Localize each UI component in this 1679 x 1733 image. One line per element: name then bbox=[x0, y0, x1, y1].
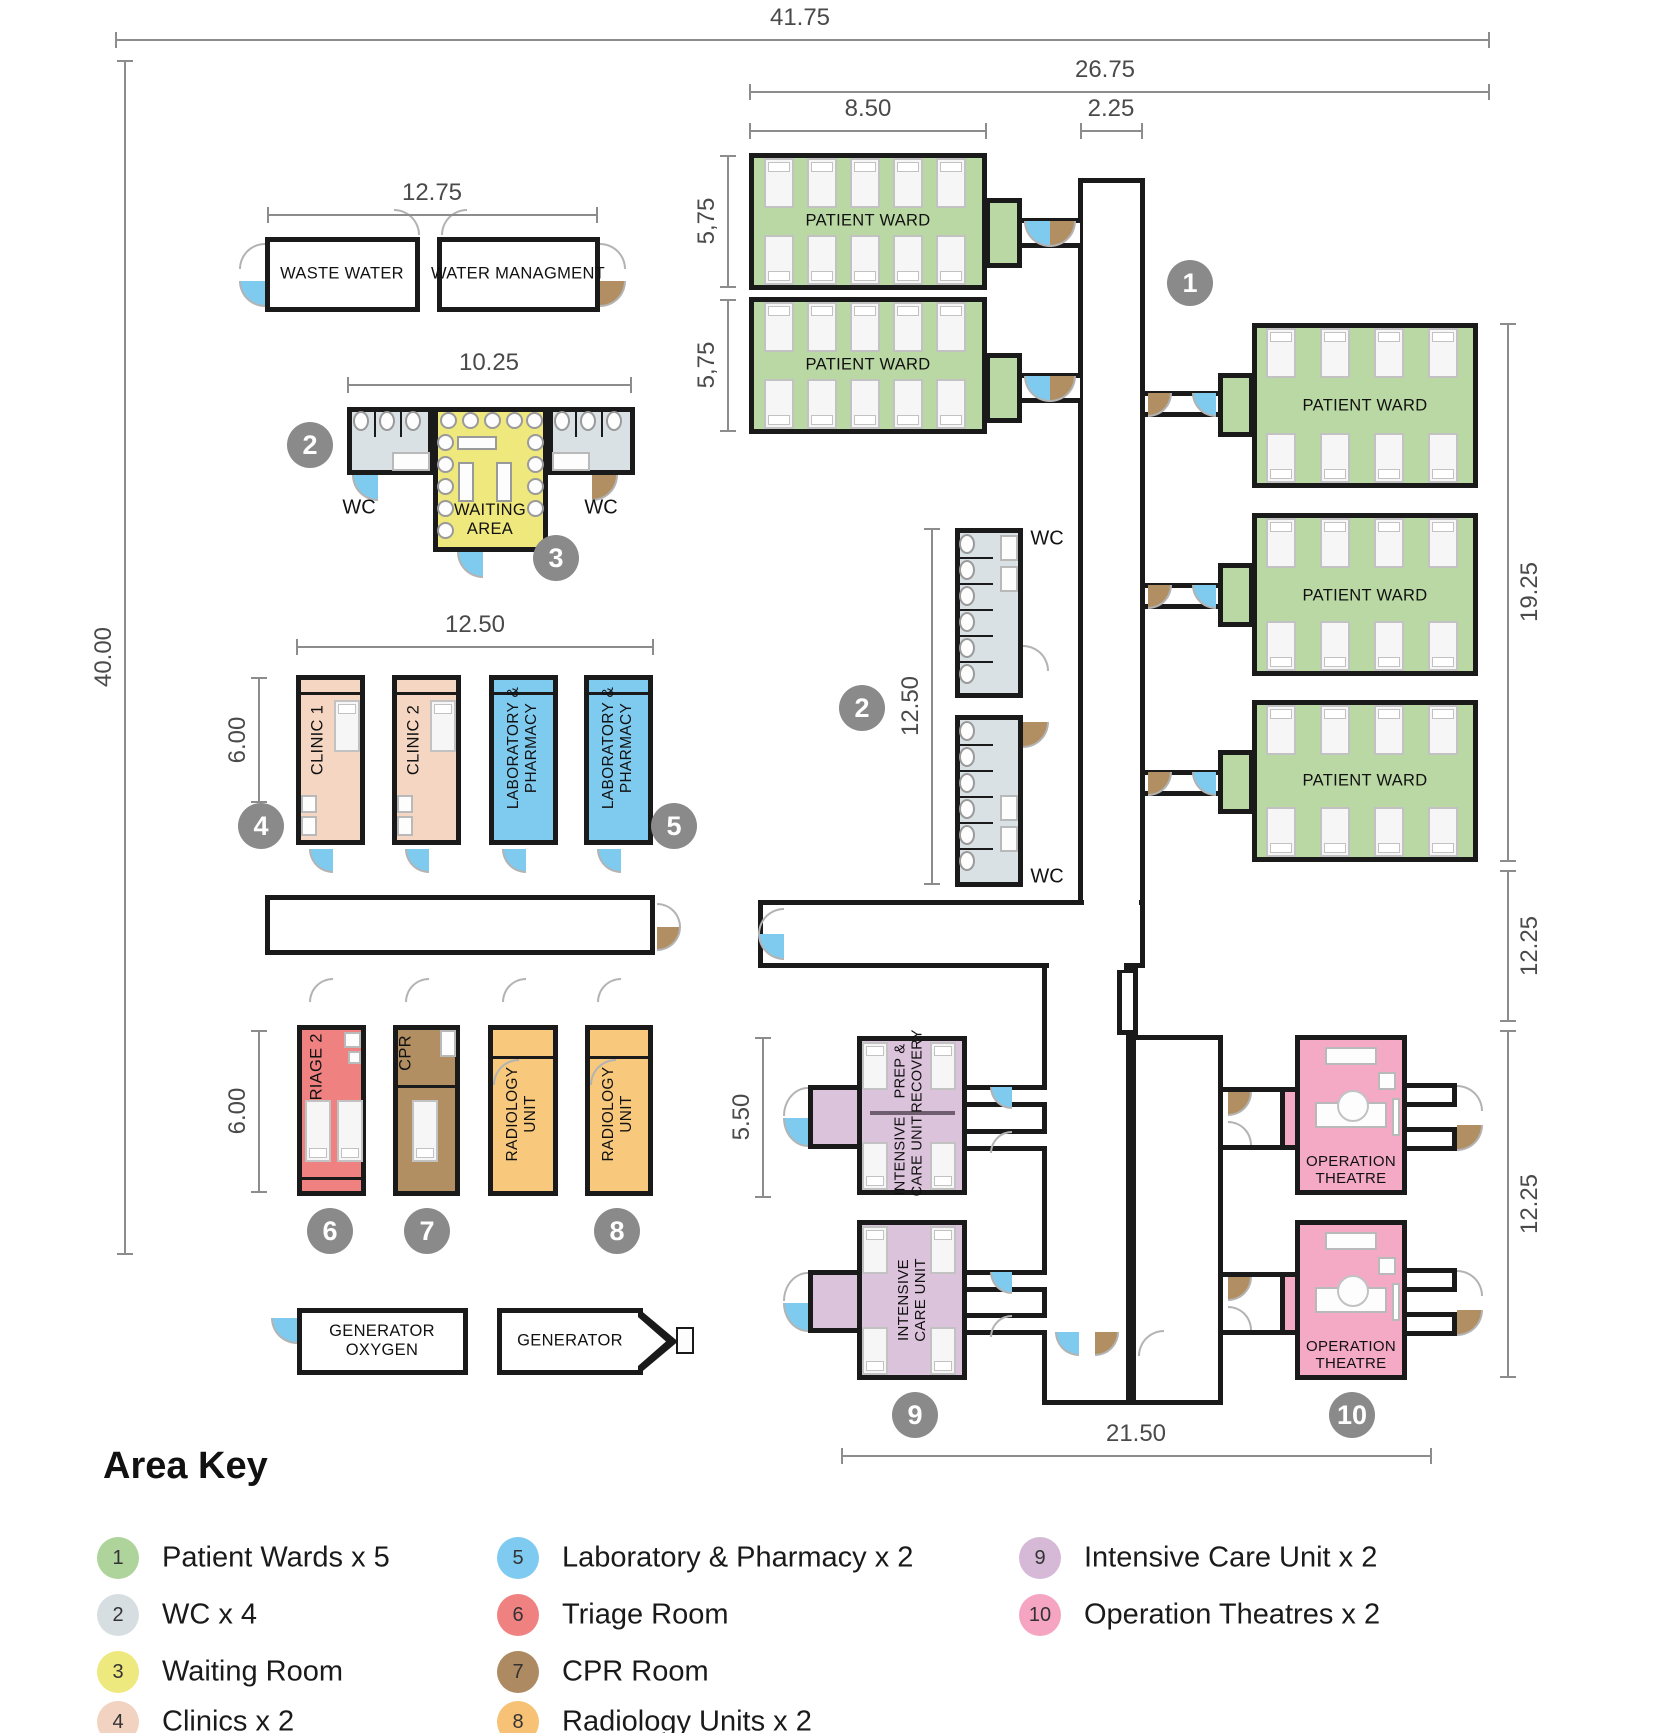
legend-swatch-6: 6 bbox=[497, 1594, 539, 1636]
ot-equipment bbox=[1392, 1098, 1400, 1136]
chair bbox=[527, 434, 544, 451]
wc-sink bbox=[1000, 535, 1018, 561]
dim-line-clinic-block bbox=[296, 646, 654, 648]
bed bbox=[807, 235, 837, 285]
door-arc bbox=[309, 978, 333, 1002]
bed bbox=[850, 379, 880, 429]
bed bbox=[807, 158, 837, 208]
stall-wall bbox=[955, 770, 993, 772]
bed bbox=[430, 700, 456, 752]
triage-cabinet bbox=[344, 1032, 361, 1048]
dim-line-theatre-block bbox=[1507, 1030, 1509, 1378]
marker-10: 10 bbox=[1329, 1392, 1375, 1438]
dim-line-bottom-block bbox=[841, 1455, 1432, 1457]
room-label-intensive-care: INTENSIVE CARE UNIT bbox=[892, 1116, 925, 1197]
wall-line bbox=[393, 1085, 460, 1088]
stall-wall bbox=[955, 557, 993, 559]
door-arc bbox=[1457, 1125, 1483, 1151]
ot-equipment bbox=[1392, 1283, 1400, 1321]
stall-wall bbox=[955, 609, 993, 611]
legend-swatch-9: 9 bbox=[1019, 1537, 1061, 1579]
marker-8: 8 bbox=[594, 1208, 640, 1254]
icu2-tab bbox=[808, 1270, 862, 1333]
room-label-laboratory: LABORATORY & PHARMACY bbox=[600, 687, 636, 809]
room-label-operation-theatre: OPERATION THEATRE bbox=[1306, 1338, 1396, 1373]
chair bbox=[526, 412, 543, 429]
dim-total-width: 41.75 bbox=[770, 4, 830, 32]
ot-equipment bbox=[1378, 1257, 1396, 1275]
dim-line-wc-waiting bbox=[347, 384, 632, 386]
legend-label-1: Patient Wards x 5 bbox=[162, 1542, 390, 1575]
corridor-left-horizontal bbox=[265, 895, 655, 955]
dim-icu-height: 5.50 bbox=[728, 1094, 756, 1141]
legend-swatch-5: 5 bbox=[497, 1537, 539, 1579]
bed bbox=[807, 302, 837, 352]
bed bbox=[1428, 518, 1458, 568]
wall-line bbox=[585, 1056, 653, 1059]
dim-line-total-height bbox=[124, 60, 126, 1255]
wc-sink bbox=[1000, 566, 1018, 592]
icu1-tab bbox=[808, 1085, 862, 1149]
waiting-table bbox=[496, 462, 512, 502]
legend-label-8: Radiology Units x 2 bbox=[562, 1706, 812, 1733]
bed bbox=[1428, 621, 1458, 671]
room-label-waste-water: WASTE WATER bbox=[280, 265, 404, 284]
dim-line-total-width bbox=[115, 39, 1490, 41]
ot-equipment bbox=[1378, 1072, 1396, 1090]
marker-7: 7 bbox=[404, 1208, 450, 1254]
ward2-tab bbox=[985, 353, 1022, 423]
dim-clinic-block: 12.50 bbox=[445, 611, 505, 639]
ot-equipment bbox=[1325, 1047, 1377, 1065]
stall-wall bbox=[955, 744, 993, 746]
wall-line bbox=[296, 692, 365, 695]
wall-line bbox=[488, 1056, 558, 1059]
wall-line bbox=[392, 692, 461, 695]
legend-label-2: WC x 4 bbox=[162, 1599, 257, 1632]
dim-line-ward-width bbox=[749, 130, 987, 132]
bed bbox=[1320, 328, 1350, 378]
door-arc bbox=[657, 927, 681, 951]
stall-wall bbox=[374, 407, 376, 437]
bed bbox=[337, 1100, 363, 1162]
wc-toilet bbox=[606, 411, 622, 431]
door-arc bbox=[441, 209, 467, 235]
bed bbox=[764, 158, 794, 208]
dim-ward-a: 5,75 bbox=[693, 198, 721, 245]
chair bbox=[484, 412, 501, 429]
marker-2: 2 bbox=[839, 685, 885, 731]
bed bbox=[1320, 807, 1350, 857]
bed bbox=[1320, 433, 1350, 483]
ot-equipment bbox=[1325, 1232, 1377, 1250]
bed bbox=[1428, 433, 1458, 483]
wc-toilet bbox=[959, 851, 975, 871]
wc-toilet bbox=[959, 825, 975, 845]
chair bbox=[437, 478, 454, 495]
bed bbox=[936, 158, 966, 208]
legend-label-6: Triage Room bbox=[562, 1599, 729, 1632]
legend-label-9: Intensive Care Unit x 2 bbox=[1084, 1542, 1377, 1575]
door-arc bbox=[783, 1303, 808, 1332]
dim-mid-wc: 12.50 bbox=[897, 676, 925, 736]
door-arc bbox=[239, 281, 265, 307]
bed bbox=[936, 235, 966, 285]
ward1-tab bbox=[985, 198, 1022, 268]
chair bbox=[462, 412, 479, 429]
wc-toilet bbox=[959, 586, 975, 606]
dim-theatre-block: 12.25 bbox=[1516, 1174, 1544, 1234]
chair bbox=[506, 412, 523, 429]
bed bbox=[862, 1042, 888, 1090]
door-arc bbox=[502, 849, 526, 873]
door-stub-ot2-right bbox=[1407, 1268, 1457, 1292]
door-arc bbox=[597, 978, 621, 1002]
ward4-tab bbox=[1218, 563, 1254, 627]
door-arc bbox=[1457, 1310, 1483, 1336]
bed bbox=[893, 302, 923, 352]
dim-ward-b: 5,75 bbox=[693, 342, 721, 389]
legend-label-3: Waiting Room bbox=[162, 1656, 343, 1689]
room-label-patient-ward: PATIENT WARD bbox=[1303, 397, 1428, 416]
bed bbox=[764, 379, 794, 429]
dim-line-mid-wc bbox=[931, 528, 933, 885]
wc-sink bbox=[1000, 795, 1018, 821]
room-label-laboratory: LABORATORY & PHARMACY bbox=[505, 687, 541, 809]
door-arc bbox=[405, 849, 429, 873]
bed bbox=[412, 1100, 438, 1162]
legend-label-7: CPR Room bbox=[562, 1656, 709, 1689]
room-label-clinic-2: CLINIC 2 bbox=[405, 705, 424, 775]
bed bbox=[305, 1100, 331, 1162]
wc-toilet bbox=[554, 411, 570, 431]
door-arc bbox=[405, 978, 429, 1002]
marker-9: 9 bbox=[892, 1392, 938, 1438]
stall-wall bbox=[400, 407, 402, 437]
corridor-junction bbox=[1084, 898, 1139, 910]
room-label-radiology: RADIOLOGY UNIT bbox=[504, 1067, 540, 1162]
bed bbox=[862, 1226, 888, 1274]
bed bbox=[936, 379, 966, 429]
bed bbox=[1320, 705, 1350, 755]
clinic-cabinet bbox=[397, 816, 413, 836]
dim-mid-right: 12.25 bbox=[1516, 916, 1544, 976]
bed bbox=[1266, 807, 1296, 857]
marker-5: 5 bbox=[651, 803, 697, 849]
room-label-cpr: CPR bbox=[397, 1035, 416, 1071]
bed bbox=[1266, 621, 1296, 671]
stall-wall bbox=[955, 848, 993, 850]
bed bbox=[1374, 621, 1404, 671]
bed bbox=[936, 302, 966, 352]
triage-cabinet bbox=[348, 1051, 361, 1064]
door-arc bbox=[783, 1272, 808, 1301]
room-label-prep-recovery: PREP & RECOVERY bbox=[892, 1029, 925, 1113]
corridor-junction bbox=[1049, 956, 1124, 970]
bed bbox=[764, 302, 794, 352]
legend-swatch-4: 4 bbox=[97, 1701, 139, 1733]
bed bbox=[1374, 807, 1404, 857]
wc-toilet bbox=[959, 664, 975, 684]
dim-line-ward-a bbox=[727, 155, 729, 288]
bed bbox=[850, 302, 880, 352]
room-label-operation-theatre: OPERATION THEATRE bbox=[1306, 1153, 1396, 1188]
legend-swatch-2: 2 bbox=[97, 1594, 139, 1636]
corridor-top-vertical bbox=[1078, 178, 1145, 905]
wc-toilet bbox=[353, 411, 369, 431]
dim-line-corridor-width bbox=[1080, 130, 1143, 132]
wc-sink bbox=[392, 452, 430, 471]
wc-toilet bbox=[959, 721, 975, 741]
wc-toilet bbox=[959, 799, 975, 819]
stall-wall bbox=[955, 796, 993, 798]
room-label-patient-ward: PATIENT WARD bbox=[806, 212, 931, 231]
door-arc bbox=[1457, 1270, 1483, 1296]
dim-total-height: 40.00 bbox=[90, 627, 118, 687]
bed bbox=[1320, 621, 1350, 671]
chair bbox=[527, 500, 544, 517]
dim-right-wards: 19.25 bbox=[1516, 562, 1544, 622]
room-label-radiology: RADIOLOGY UNIT bbox=[600, 1067, 636, 1162]
marker-4: 4 bbox=[238, 803, 284, 849]
room-label-generator-oxygen: GENERATOR OXYGEN bbox=[329, 1322, 435, 1360]
generator-endbox bbox=[676, 1327, 694, 1354]
wc-toilet bbox=[405, 411, 421, 431]
bed bbox=[850, 235, 880, 285]
bed bbox=[930, 1226, 956, 1274]
door-arc bbox=[657, 903, 681, 927]
marker-1: 1 bbox=[1167, 260, 1213, 306]
door-arc bbox=[1023, 645, 1049, 671]
dim-line-icu-height bbox=[762, 1037, 764, 1198]
room-label-wc: WC bbox=[1030, 866, 1063, 889]
bed bbox=[1266, 518, 1296, 568]
door-arc bbox=[600, 281, 626, 307]
bed bbox=[1374, 328, 1404, 378]
marker-6: 6 bbox=[307, 1208, 353, 1254]
room-label-wc: WC bbox=[1030, 528, 1063, 551]
bed bbox=[862, 1142, 888, 1190]
stall-wall bbox=[955, 583, 993, 585]
waiting-table bbox=[458, 462, 474, 502]
chair bbox=[440, 412, 457, 429]
door-stub-ot2-right bbox=[1407, 1312, 1457, 1336]
dim-line-mid-right bbox=[1507, 870, 1509, 1022]
door-arc bbox=[597, 849, 621, 873]
door-arc bbox=[457, 552, 483, 578]
door-stub-ot1-right bbox=[1407, 1127, 1457, 1151]
legend-label-4: Clinics x 2 bbox=[162, 1706, 294, 1733]
bed bbox=[850, 158, 880, 208]
room-label-clinic-1: CLINIC 1 bbox=[309, 705, 328, 775]
room-label-generator: GENERATOR bbox=[517, 1332, 623, 1351]
ot-lamp bbox=[1337, 1275, 1369, 1307]
bed bbox=[334, 700, 360, 752]
bed bbox=[1374, 433, 1404, 483]
marker-2: 2 bbox=[287, 422, 333, 468]
bed bbox=[1320, 518, 1350, 568]
room-label-waiting-area: WAITING AREA bbox=[454, 501, 526, 539]
bed bbox=[1428, 328, 1458, 378]
corridor-niche bbox=[1117, 968, 1138, 1035]
dim-line-right-block bbox=[749, 91, 1490, 93]
bed bbox=[1266, 433, 1296, 483]
door-arc bbox=[271, 1318, 297, 1344]
dim-ward-width: 8.50 bbox=[845, 95, 892, 123]
ward3-tab bbox=[1218, 373, 1254, 437]
stall-wall bbox=[575, 407, 577, 437]
wc-toilet bbox=[959, 747, 975, 767]
bed bbox=[1428, 705, 1458, 755]
dim-bottom-block: 21.50 bbox=[1106, 1420, 1166, 1448]
wc-toilet bbox=[959, 560, 975, 580]
bed bbox=[764, 235, 794, 285]
room-label-patient-ward: PATIENT WARD bbox=[1303, 772, 1428, 791]
dim-right-block: 26.75 bbox=[1075, 56, 1135, 84]
bed bbox=[1374, 705, 1404, 755]
door-arc bbox=[394, 209, 420, 235]
bed bbox=[930, 1142, 956, 1190]
dim-wc-waiting: 10.25 bbox=[459, 349, 519, 377]
chair bbox=[527, 456, 544, 473]
marker-3: 3 bbox=[533, 535, 579, 581]
wall-line bbox=[297, 1177, 366, 1180]
door-stub-ot1-right bbox=[1407, 1083, 1457, 1107]
dim-line-utility bbox=[267, 214, 598, 216]
chair bbox=[437, 500, 454, 517]
chair bbox=[437, 434, 454, 451]
bed bbox=[862, 1327, 888, 1375]
clinic-cabinet bbox=[301, 816, 317, 836]
hospital-floor-plan: TRIAGE 2 bbox=[0, 0, 1679, 1733]
stall-wall bbox=[955, 822, 993, 824]
dim-clinic-height: 6.00 bbox=[224, 717, 252, 764]
door-arc bbox=[1457, 1085, 1483, 1111]
bed bbox=[807, 379, 837, 429]
wc-toilet bbox=[959, 773, 975, 793]
wc-toilet bbox=[580, 411, 596, 431]
bed bbox=[930, 1042, 956, 1090]
dim-line-ward-b bbox=[727, 299, 729, 432]
wc-toilet bbox=[959, 534, 975, 554]
door-arc bbox=[1023, 722, 1049, 748]
wc-sink bbox=[1000, 826, 1018, 852]
cpr-cabinet bbox=[440, 1030, 456, 1057]
bed bbox=[930, 1327, 956, 1375]
legend-swatch-3: 3 bbox=[97, 1651, 139, 1693]
wc-sink bbox=[552, 452, 590, 471]
bed bbox=[1374, 518, 1404, 568]
bed bbox=[1428, 807, 1458, 857]
waiting-table bbox=[457, 436, 497, 450]
legend-label-5: Laboratory & Pharmacy x 2 bbox=[562, 1542, 913, 1575]
legend-label-10: Operation Theatres x 2 bbox=[1084, 1599, 1380, 1632]
legend-title: Area Key bbox=[103, 1445, 268, 1488]
wc-toilet bbox=[959, 638, 975, 658]
dim-line-right-wards bbox=[1507, 323, 1509, 862]
wc-toilet bbox=[959, 612, 975, 632]
door-arc bbox=[502, 978, 526, 1002]
ward5-tab bbox=[1218, 750, 1254, 814]
legend-swatch-10: 10 bbox=[1019, 1594, 1061, 1636]
dim-line-triage-height bbox=[258, 1030, 260, 1193]
door-arc bbox=[783, 1118, 808, 1147]
stall-wall bbox=[955, 661, 993, 663]
room-label-wc: WC bbox=[584, 497, 617, 520]
stall-wall bbox=[601, 407, 603, 437]
room-label-intensive-care: INTENSIVE CARE UNIT bbox=[895, 1258, 930, 1342]
wc-toilet bbox=[379, 411, 395, 431]
clinic-cabinet bbox=[397, 795, 413, 813]
dim-utility: 12.75 bbox=[402, 179, 462, 207]
ot-lamp bbox=[1337, 1090, 1369, 1122]
stall-wall bbox=[955, 635, 993, 637]
bed bbox=[893, 379, 923, 429]
room-label-patient-ward: PATIENT WARD bbox=[1303, 587, 1428, 606]
room-label-patient-ward: PATIENT WARD bbox=[806, 356, 931, 375]
legend-swatch-1: 1 bbox=[97, 1537, 139, 1579]
dim-triage-height: 6.00 bbox=[224, 1088, 252, 1135]
room-label-wc: WC bbox=[342, 497, 375, 520]
room-label-water-management: WATER MANAGMENT bbox=[431, 265, 605, 284]
door-arc bbox=[239, 243, 265, 269]
chair bbox=[437, 522, 454, 539]
door-arc bbox=[783, 1087, 808, 1116]
bed bbox=[893, 158, 923, 208]
legend-swatch-7: 7 bbox=[497, 1651, 539, 1693]
chair bbox=[437, 456, 454, 473]
door-arc bbox=[309, 849, 333, 873]
dim-line-clinic-height bbox=[258, 677, 260, 803]
legend-swatch-8: 8 bbox=[497, 1701, 539, 1733]
bed bbox=[893, 235, 923, 285]
clinic-cabinet bbox=[301, 795, 317, 813]
bed bbox=[1266, 328, 1296, 378]
chair bbox=[527, 478, 544, 495]
bed bbox=[1266, 705, 1296, 755]
dim-corridor-width: 2.25 bbox=[1088, 95, 1135, 123]
